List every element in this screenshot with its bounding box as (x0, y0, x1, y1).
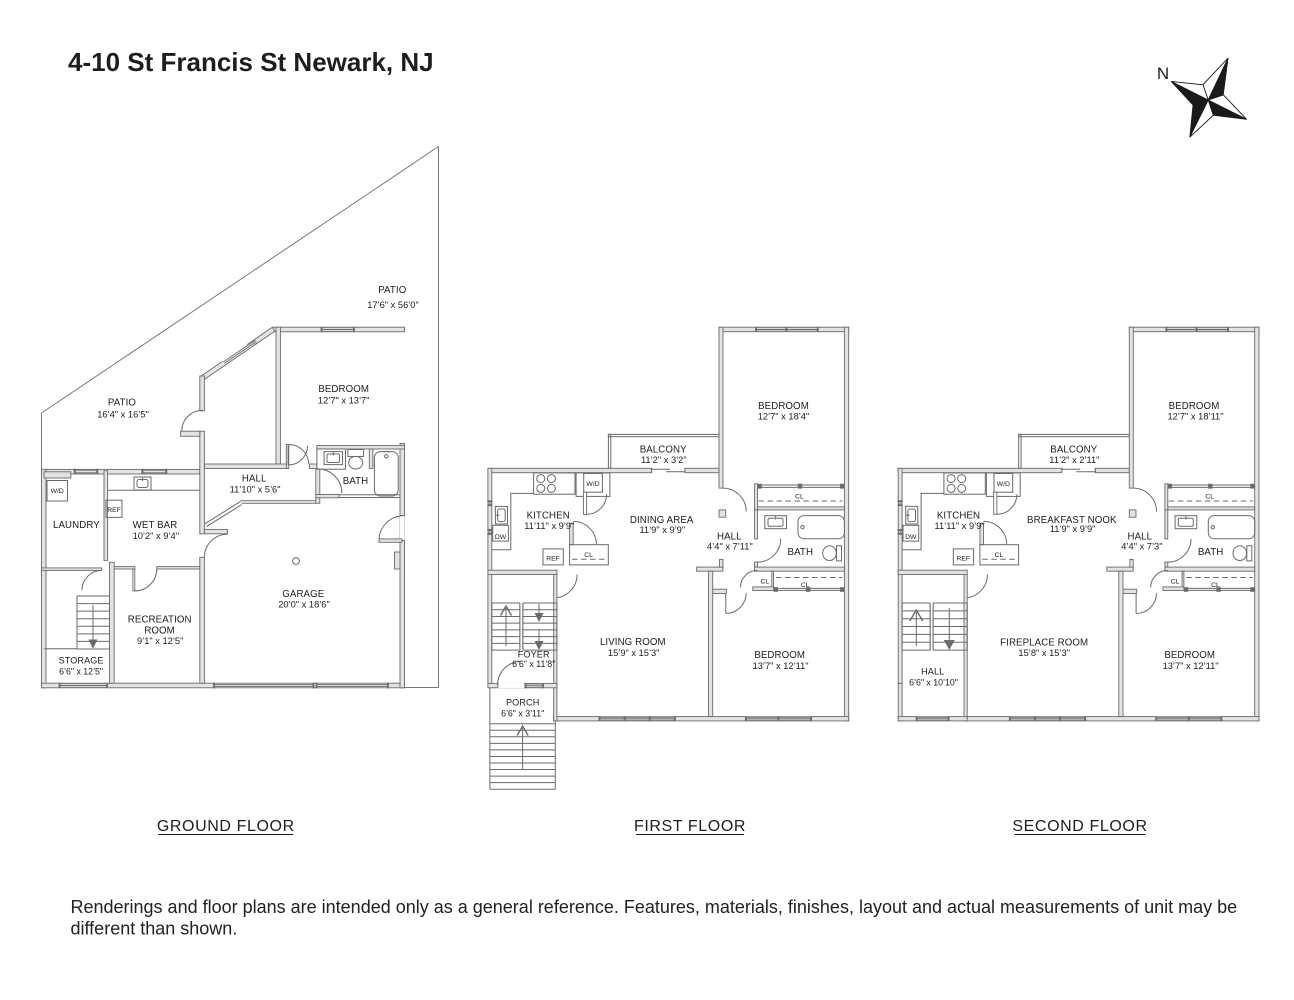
svg-text:HALL: HALL (921, 667, 944, 677)
svg-text:CL: CL (1205, 494, 1214, 501)
svg-text:11’11" x 9’9": 11’11" x 9’9" (524, 521, 574, 531)
svg-text:10’2" x 9’4": 10’2" x 9’4" (133, 531, 179, 541)
svg-text:BALCONY: BALCONY (640, 445, 687, 456)
svg-text:PATIO: PATIO (378, 285, 406, 296)
svg-text:Renderings and floor plans are: Renderings and floor plans are intended … (71, 897, 1238, 917)
svg-text:CL: CL (795, 494, 804, 501)
svg-text:W/D: W/D (586, 481, 599, 488)
svg-text:BEDROOM: BEDROOM (1169, 401, 1220, 412)
svg-text:BEDROOM: BEDROOM (318, 384, 369, 395)
svg-text:FIRST FLOOR: FIRST FLOOR (634, 818, 746, 835)
svg-text:HALL: HALL (242, 473, 267, 484)
svg-text:PORCH: PORCH (506, 698, 539, 708)
svg-text:6’6" x 10’10": 6’6" x 10’10" (909, 677, 958, 687)
svg-text:13’7" x 12’11": 13’7" x 12’11" (753, 661, 809, 671)
svg-text:11’9" x 9’9": 11’9" x 9’9" (639, 525, 685, 535)
svg-text:KITCHEN: KITCHEN (527, 510, 570, 521)
svg-text:4-10 St Francis St Newark, NJ: 4-10 St Francis St Newark, NJ (68, 47, 434, 77)
svg-text:13’7" x 12’11": 13’7" x 12’11" (1163, 661, 1219, 671)
svg-text:W/D: W/D (51, 488, 64, 495)
svg-text:17’6" x 56’0": 17’6" x 56’0" (367, 300, 419, 310)
svg-text:ROOM: ROOM (144, 625, 175, 636)
svg-text:DW: DW (495, 534, 507, 541)
svg-text:WET BAR: WET BAR (133, 520, 178, 531)
svg-text:BATH: BATH (1198, 547, 1224, 558)
svg-text:12’7" x 18’11": 12’7" x 18’11" (1167, 412, 1223, 422)
svg-text:CL: CL (760, 579, 769, 586)
svg-text:BEDROOM: BEDROOM (758, 401, 809, 412)
svg-text:REF: REF (546, 555, 560, 562)
svg-text:CL: CL (584, 552, 593, 559)
svg-text:GROUND FLOOR: GROUND FLOOR (157, 818, 295, 835)
svg-text:BEDROOM: BEDROOM (754, 650, 805, 661)
svg-text:CL: CL (1211, 582, 1220, 589)
svg-text:12’7" x 18’4": 12’7" x 18’4" (758, 412, 810, 422)
svg-text:LAUNDRY: LAUNDRY (53, 520, 100, 531)
svg-text:12’7" x 13’7": 12’7" x 13’7" (318, 396, 370, 406)
svg-text:CL: CL (801, 582, 810, 589)
svg-text:15’8" x 15’3": 15’8" x 15’3" (1018, 648, 1070, 658)
svg-text:11’2" x 3’2": 11’2" x 3’2" (641, 455, 687, 465)
svg-text:SECOND FLOOR: SECOND FLOOR (1012, 818, 1147, 835)
svg-text:PATIO: PATIO (108, 398, 136, 409)
svg-text:6’6" x 12’5": 6’6" x 12’5" (59, 667, 103, 677)
svg-text:GARAGE: GARAGE (282, 589, 324, 600)
svg-text:20’0" x 18’6": 20’0" x 18’6" (278, 600, 330, 610)
svg-text:KITCHEN: KITCHEN (937, 510, 980, 521)
svg-text:BATH: BATH (343, 476, 369, 487)
svg-text:4’4" x 7’11": 4’4" x 7’11" (707, 541, 753, 551)
svg-text:different than shown.: different than shown. (71, 919, 238, 939)
svg-text:11’2" x 2’11": 11’2" x 2’11" (1049, 455, 1099, 465)
svg-text:4’4" x 7’3": 4’4" x 7’3" (1121, 541, 1162, 551)
svg-text:16’4" x 16’5": 16’4" x 16’5" (97, 410, 149, 420)
svg-text:LIVING ROOM: LIVING ROOM (600, 637, 666, 648)
svg-text:BATH: BATH (788, 547, 814, 558)
svg-text:N: N (1157, 64, 1169, 83)
svg-text:11’11" x 9’9": 11’11" x 9’9" (934, 521, 984, 531)
svg-text:BEDROOM: BEDROOM (1164, 650, 1215, 661)
svg-text:RECREATION: RECREATION (128, 614, 192, 625)
svg-text:6’6" x 3’11": 6’6" x 3’11" (501, 708, 544, 718)
svg-text:FIREPLACE ROOM: FIREPLACE ROOM (1000, 637, 1088, 648)
svg-text:CL: CL (1171, 579, 1180, 586)
svg-text:STORAGE: STORAGE (59, 655, 104, 665)
svg-text:11’9" x 9’9": 11’9" x 9’9" (1050, 524, 1096, 534)
svg-text:BALCONY: BALCONY (1050, 445, 1097, 456)
svg-text:9’1" x 12’5": 9’1" x 12’5" (137, 636, 183, 646)
svg-text:11’10" x 5’6": 11’10" x 5’6" (230, 485, 281, 495)
svg-text:REF: REF (107, 507, 121, 514)
svg-text:15’9" x 15’3": 15’9" x 15’3" (608, 648, 660, 658)
svg-text:6’6" x 11’8": 6’6" x 11’8" (512, 659, 555, 669)
